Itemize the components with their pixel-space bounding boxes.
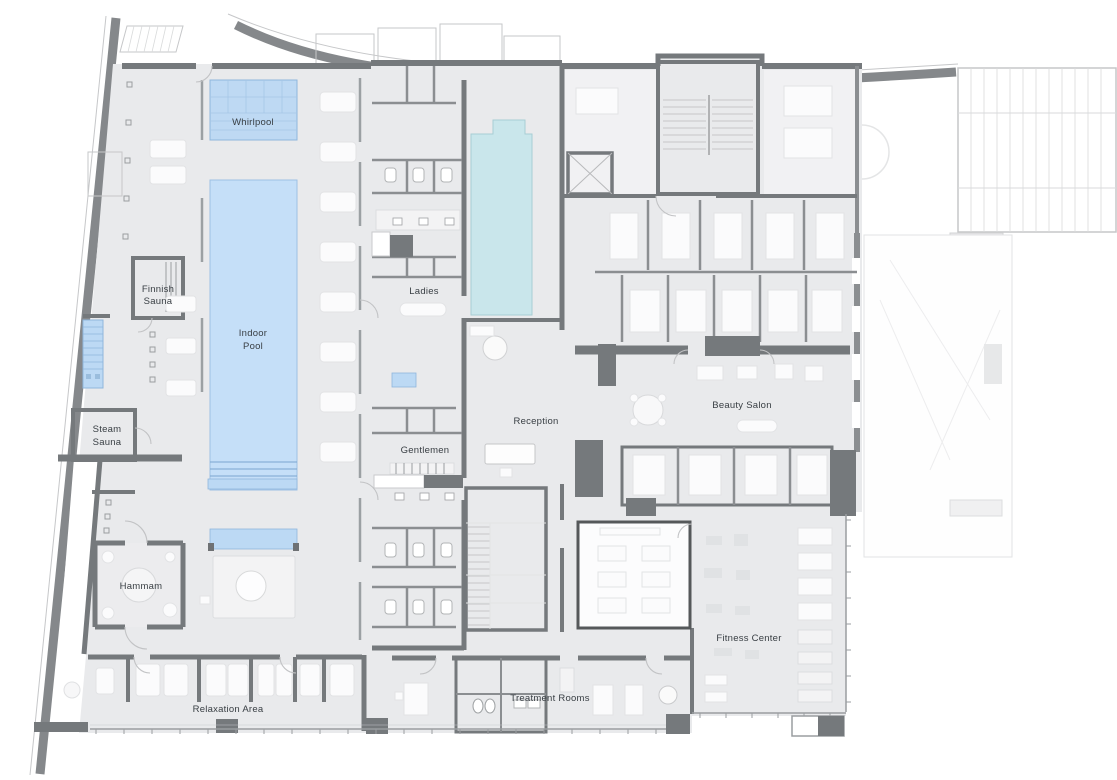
pool-loungers-east-shape (320, 442, 356, 462)
fitness-studio-shape (642, 598, 670, 613)
treatment-beds-shape (593, 685, 613, 715)
fitness-studio (578, 522, 690, 628)
label-steam-sauna-2: Sauna (93, 437, 122, 448)
wall-block-west (598, 344, 616, 386)
reception-desk (485, 444, 535, 464)
gentlemen-fixtures-shape (441, 543, 452, 557)
fitness-equipment-shape (705, 675, 727, 685)
fitness-studio-shape (578, 522, 690, 628)
fitness-equipment-shape (705, 692, 727, 702)
upper-room-beds-shape (722, 290, 752, 332)
fitness-studio-shape (598, 572, 626, 587)
side-terrace-shape (950, 500, 1002, 516)
fitness-equipment-shape (706, 536, 722, 545)
window-slit-4 (852, 402, 860, 428)
gentlemen-fixtures-shape (385, 543, 396, 557)
label-gentlemen: Gentlemen (401, 445, 450, 456)
upper-annex-rooms-shape (378, 28, 436, 64)
side-terrace (864, 235, 1012, 557)
pool-hall-south-mat-shape (236, 571, 266, 601)
treatment-beds-shape (560, 668, 574, 692)
fitness-studio-shape (600, 528, 660, 535)
pool-loungers-east-shape (320, 192, 356, 212)
label-relaxation-area: Relaxation Area (193, 704, 264, 715)
upper-room-beds-shape (714, 213, 742, 259)
relaxation-beds-shape (206, 664, 226, 696)
column-bottom-2 (366, 718, 388, 734)
gentlemen-fixtures-shape (413, 543, 424, 557)
pool-loungers-west-shape (166, 338, 196, 354)
treatment-wc-core-shape (485, 699, 495, 713)
pool-loungers-east-shape (320, 392, 356, 412)
ladies-fixtures-shape (390, 235, 413, 257)
hammam-room-shape (163, 603, 177, 617)
ladies-fixtures-shape (419, 218, 428, 225)
pool-loungers-east-shape (320, 142, 356, 162)
gentlemen-fixtures-shape (424, 475, 463, 488)
fitness-equipment-shape (798, 652, 832, 664)
fitness-studio-shape (598, 598, 626, 613)
beauty-salon-furniture-shape (775, 364, 793, 379)
pool-loungers-east-shape (320, 292, 356, 312)
beauty-salon-furniture-shape (797, 455, 827, 495)
hammam-room-shape (102, 607, 114, 619)
beauty-salon-furniture-shape (697, 366, 723, 380)
upper-room-beds-shape (576, 88, 618, 114)
footbath (392, 373, 416, 387)
fitness-equipment-shape (736, 570, 750, 580)
fitness-equipment-shape (798, 578, 832, 595)
treatment-wc-core-shape (473, 699, 483, 713)
upper-annex-rooms-shape (440, 24, 502, 64)
roof-terrace (835, 68, 1116, 557)
treatment-beds-shape (659, 686, 677, 704)
fitness-equipment-shape (798, 603, 832, 620)
ladies-fixtures-shape (445, 218, 454, 225)
plunge-stair-pool (83, 320, 103, 388)
relaxation-beds-shape (64, 682, 80, 698)
label-ladies: Ladies (409, 286, 439, 297)
beauty-salon-furniture-shape (745, 455, 777, 495)
floorplan-drawing: Whirlpool Finnish Sauna Indoor Pool Stea… (0, 0, 1117, 780)
treatment-beds-shape (404, 683, 428, 715)
gentlemen-fixtures-shape (445, 493, 454, 500)
gentlemen-fixtures-shape (395, 493, 404, 500)
column-bottom-1 (216, 719, 238, 733)
pool-loungers-west-shape (150, 140, 186, 158)
relaxation-beds-shape (276, 664, 292, 696)
pool-loungers-west-shape (150, 166, 186, 184)
beauty-salon-furniture-shape (737, 420, 777, 432)
dark-core-1 (575, 440, 603, 497)
site-hatch-area-shape (128, 26, 174, 52)
pool-hall-south-mat-shape (200, 596, 210, 604)
pool-loungers-west-shape (166, 380, 196, 396)
skylight-grid-shape (958, 68, 1116, 232)
upper-room-beds-shape (784, 86, 832, 116)
label-indoor-pool-1: Indoor (239, 328, 267, 339)
pool-bench-strip-2-shape (208, 543, 214, 551)
beauty-salon-furniture-shape (633, 455, 665, 495)
gentlemen-fixtures-shape (374, 475, 424, 488)
window-slit-3 (852, 354, 860, 380)
treatment-beds-shape (395, 692, 403, 700)
beauty-salon-furniture-shape (658, 394, 666, 402)
beauty-salon-furniture-shape (689, 455, 721, 495)
reception-furniture-shape (500, 468, 512, 477)
relaxation-beds-shape (96, 668, 114, 694)
fitness-equipment-shape (798, 528, 832, 545)
pool-bench-strip-1 (208, 479, 297, 489)
label-fitness-center: Fitness Center (716, 633, 781, 644)
upper-annex-rooms (316, 24, 560, 64)
gentlemen-fixtures-shape (420, 493, 429, 500)
pool-loungers-east-shape (320, 242, 356, 262)
dark-core-4 (830, 498, 856, 516)
beauty-salon-furniture-shape (805, 366, 823, 381)
pool-loungers-east-shape (320, 92, 356, 112)
side-terrace-shape (984, 344, 1002, 384)
label-reception: Reception (513, 416, 558, 427)
fitness-equipment-shape (704, 568, 722, 578)
gentlemen-fixtures-shape (413, 600, 424, 614)
beauty-salon-furniture-shape (658, 418, 666, 426)
ladies-fixtures-shape (393, 218, 402, 225)
fitness-equipment-shape (798, 630, 832, 644)
label-steam-sauna-1: Steam (93, 424, 122, 435)
whirlpool-pool-shape (210, 80, 297, 140)
relaxation-beds-shape (258, 664, 274, 696)
ladies-fixtures-shape (385, 168, 396, 182)
skylight-grid (958, 68, 1116, 232)
upper-room-beds-shape (630, 290, 660, 332)
reception-furniture-shape (470, 326, 494, 336)
skylight-grid-shape (958, 113, 1116, 188)
fitness-equipment-shape (798, 690, 832, 702)
fitness-equipment-shape (798, 672, 832, 684)
pool-bench-strip-2-shape (293, 543, 299, 551)
upper-room-beds-shape (816, 213, 844, 259)
upper-room-beds-shape (784, 128, 832, 158)
relaxation-beds-shape (228, 664, 248, 696)
reception-furniture-shape (483, 336, 507, 360)
upper-room-beds-shape (662, 213, 690, 259)
upper-room-beds-shape (676, 290, 706, 332)
fitness-equipment-shape (735, 606, 750, 615)
label-beauty-salon: Beauty Salon (712, 400, 772, 411)
glazing-fitness-east (846, 514, 851, 712)
relaxation-beds (64, 664, 354, 698)
treatment-beds-shape (625, 685, 643, 715)
fitness-equipment-shape (745, 650, 759, 659)
plunge-stair-pool-shape (95, 374, 100, 379)
upper-room-beds-shape (766, 213, 794, 259)
fitness-corner-dark-2 (666, 714, 690, 734)
label-finnish-sauna-1: Finnish (142, 284, 174, 295)
vitality-pool (471, 120, 532, 315)
label-whirlpool: Whirlpool (232, 117, 274, 128)
pool-bench-strip-2-shape (210, 529, 297, 549)
pool-loungers-east-shape (320, 342, 356, 362)
ladies-fixtures-shape (441, 168, 452, 182)
fitness-equipment-shape (734, 534, 748, 546)
ladies-fixtures-shape (372, 232, 390, 256)
beauty-salon-furniture-shape (630, 394, 638, 402)
relaxation-beds-shape (300, 664, 320, 696)
wall-block-corridor (705, 336, 760, 356)
gentlemen-fixtures-shape (385, 600, 396, 614)
fitness-studio-shape (642, 546, 670, 561)
ladies-fixtures-shape (400, 303, 446, 316)
upper-room-beds-shape (768, 290, 798, 332)
beauty-salon-furniture-shape (737, 366, 757, 379)
skylight-grid-shape (971, 68, 1101, 232)
label-hammam: Hammam (120, 581, 163, 592)
site-hatch-area (120, 26, 183, 52)
plunge-stair-pool-shape (86, 374, 91, 379)
fitness-corner-dark (818, 716, 844, 736)
fitness-studio-shape (598, 546, 626, 561)
ladies-fixtures-shape (413, 168, 424, 182)
label-finnish-sauna-2: Sauna (144, 296, 173, 307)
upper-annex-rooms-shape (504, 36, 560, 64)
gentlemen-fixtures-shape (441, 600, 452, 614)
relaxation-beds-shape (330, 664, 354, 696)
fitness-equipment-shape (714, 648, 732, 656)
fitness-studio-shape (642, 572, 670, 587)
upper-room-beds-shape (610, 213, 638, 259)
wall-bottom-left-stub (34, 722, 88, 732)
site-hatch-area-shape (120, 26, 183, 52)
hammam-room-shape (102, 551, 114, 563)
relaxation-beds-shape (164, 664, 188, 696)
whirlpool-pool (210, 80, 297, 140)
fitness-equipment-shape (798, 553, 832, 570)
hammam-room-shape (165, 552, 175, 562)
label-treatment-rooms: Treatment Rooms (510, 693, 589, 704)
pool-bench-strip-2 (208, 529, 299, 551)
dark-core-3 (626, 498, 656, 516)
upper-room-beds-shape (812, 290, 842, 332)
beauty-salon-furniture-shape (630, 418, 638, 426)
floorplan-page: Whirlpool Finnish Sauna Indoor Pool Stea… (0, 0, 1117, 780)
fitness-equipment-shape (706, 604, 722, 613)
label-indoor-pool-2: Pool (243, 341, 263, 352)
window-slit-2 (852, 306, 860, 332)
pool-hall-south-mat (200, 556, 295, 618)
